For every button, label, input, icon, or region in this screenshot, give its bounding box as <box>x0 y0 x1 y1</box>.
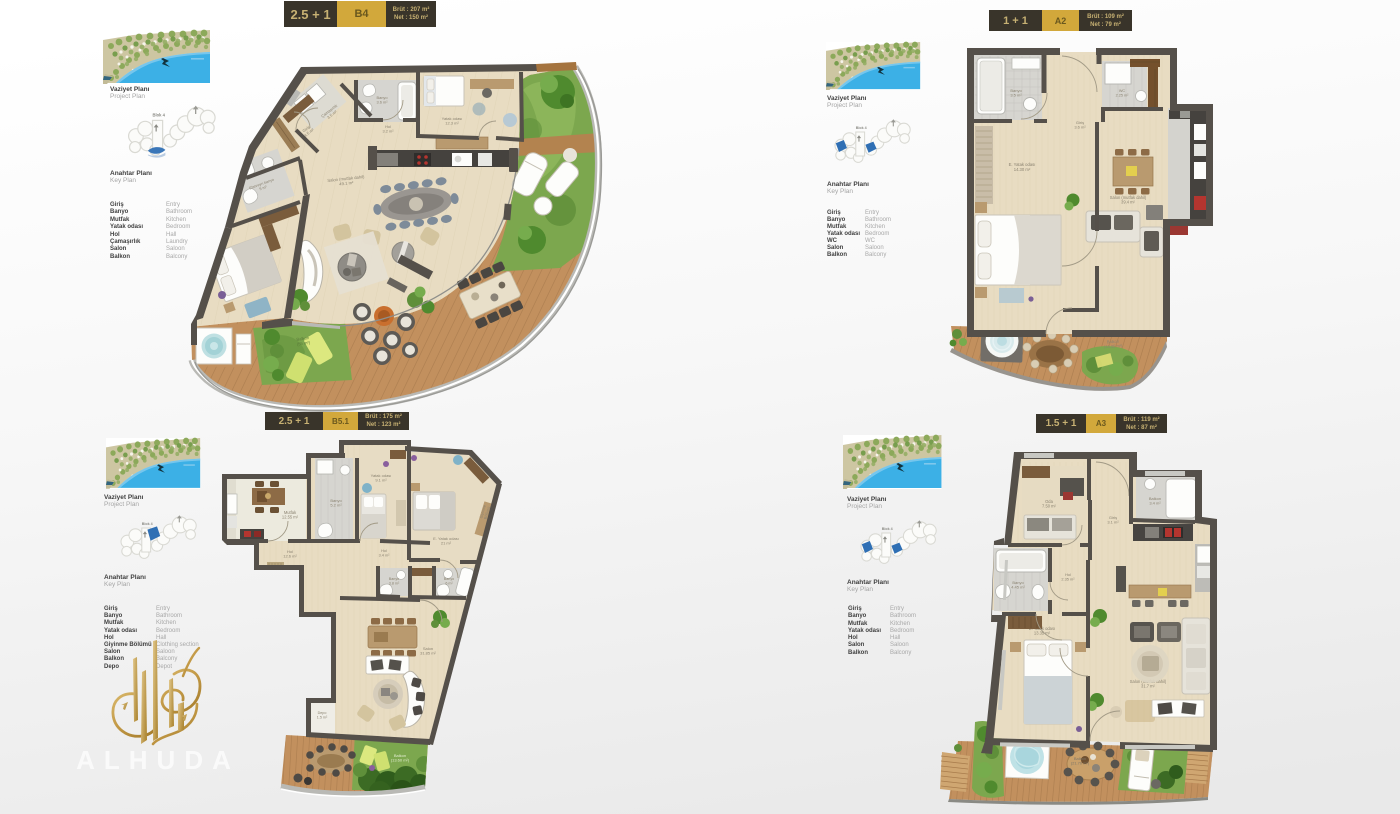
svg-text:Balkon3.4 m²: Balkon3.4 m² <box>1149 496 1161 506</box>
svg-text:Banyo3.8 m²: Banyo3.8 m² <box>389 577 400 585</box>
svg-text:ALHUDA: ALHUDA <box>76 745 240 775</box>
svg-text:Banyo6 m²: Banyo6 m² <box>444 577 454 585</box>
svg-text:Banyo3.5 m²: Banyo3.5 m² <box>1010 88 1022 98</box>
svg-text:Banyo5.2 m²: Banyo5.2 m² <box>330 498 342 508</box>
svg-text:Banyo4.45 m²: Banyo4.45 m² <box>1011 580 1025 590</box>
svg-text:Depo1.5 m²: Depo1.5 m² <box>317 711 328 719</box>
svg-text:Banyo3.6 m²: Banyo3.6 m² <box>376 95 388 105</box>
svg-text:Balkon(55 m²): Balkon(55 m²) <box>296 335 311 347</box>
svg-text:R E A L E S T A T E: R E A L E S T A T E <box>89 776 227 783</box>
